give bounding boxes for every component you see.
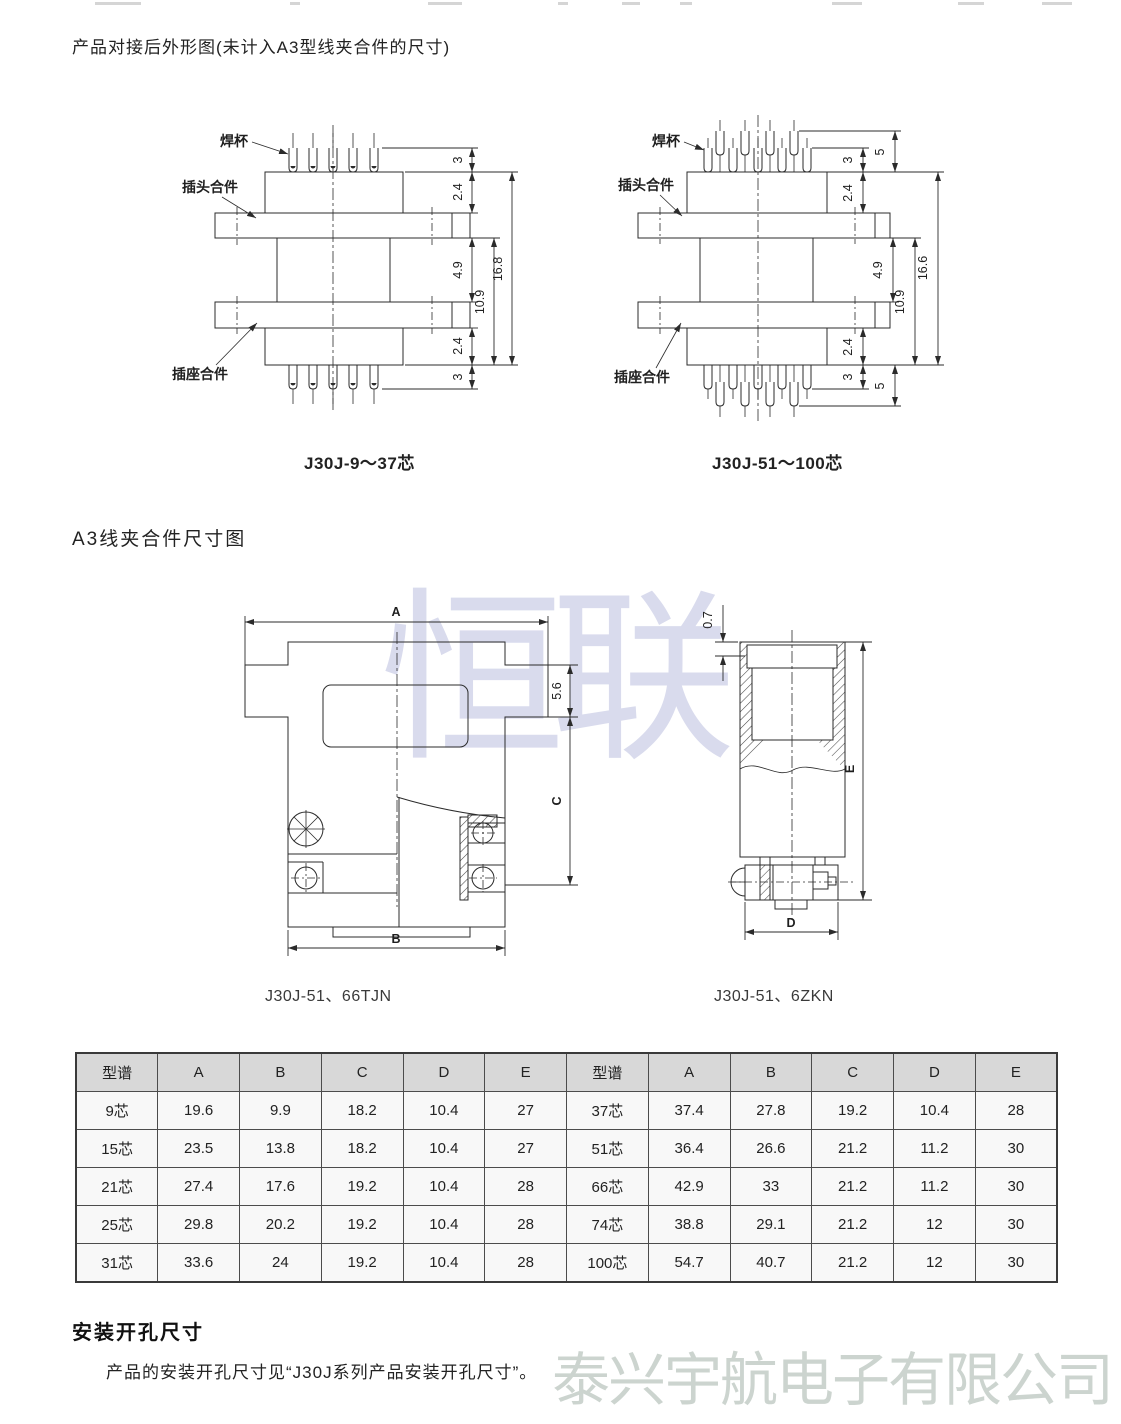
table-cell: 19.2 bbox=[321, 1168, 403, 1206]
table-cell: 10.4 bbox=[403, 1168, 485, 1206]
table-cell: 19.2 bbox=[321, 1206, 403, 1244]
table-cell: 15芯 bbox=[76, 1130, 158, 1168]
drawing-clamp-side: 0.7 E D bbox=[680, 585, 970, 985]
drawing-clamp-front: A bbox=[235, 585, 600, 980]
dim-a: A bbox=[391, 605, 400, 619]
table-cell: 27 bbox=[485, 1130, 567, 1168]
col-header: C bbox=[321, 1053, 403, 1092]
table-cell: 21.2 bbox=[812, 1168, 894, 1206]
table-cell: 9芯 bbox=[76, 1092, 158, 1130]
table-cell: 37.4 bbox=[648, 1092, 730, 1130]
col-header: B bbox=[730, 1053, 812, 1092]
table-cell: 66芯 bbox=[567, 1168, 649, 1206]
table-cell: 21芯 bbox=[76, 1168, 158, 1206]
dimension-table: 型谱 A B C D E 型谱 A B C D E 9芯19.69.918.21… bbox=[75, 1052, 1058, 1283]
label-solder-cup: 焊杯 bbox=[220, 133, 249, 149]
dim-gap: 4.9 bbox=[451, 261, 465, 278]
table-cell: 31芯 bbox=[76, 1244, 158, 1283]
caption-clamp-side: J30J-51、6ZKN bbox=[714, 982, 834, 1006]
table-cell: 13.8 bbox=[240, 1130, 322, 1168]
table-cell: 28 bbox=[485, 1206, 567, 1244]
cable-window bbox=[323, 685, 468, 747]
col-header: E bbox=[975, 1053, 1057, 1092]
table-cell: 30 bbox=[975, 1168, 1057, 1206]
col-header: 型谱 bbox=[76, 1053, 158, 1092]
col-header: 型谱 bbox=[567, 1053, 649, 1092]
dim-pin-bottom-outer: 5 bbox=[873, 382, 887, 389]
table-cell: 10.4 bbox=[403, 1206, 485, 1244]
dim-lip: 5.6 bbox=[550, 682, 564, 699]
solder-cup-pins-bottom bbox=[289, 365, 378, 404]
dim-b: B bbox=[391, 932, 400, 946]
label-socket: 插座合件 bbox=[614, 369, 670, 385]
dim-e: E bbox=[843, 765, 857, 773]
table-cell: 25芯 bbox=[76, 1206, 158, 1244]
table-cell: 30 bbox=[975, 1206, 1057, 1244]
col-header: C bbox=[812, 1053, 894, 1092]
table-cell: 51芯 bbox=[567, 1130, 649, 1168]
table-cell: 30 bbox=[975, 1244, 1057, 1283]
table-row: 15芯23.513.818.210.42751芯36.426.621.211.2… bbox=[76, 1130, 1057, 1168]
table-cell: 38.8 bbox=[648, 1206, 730, 1244]
table-cell: 29.8 bbox=[158, 1206, 240, 1244]
table-cell: 30 bbox=[975, 1130, 1057, 1168]
screw-hole bbox=[469, 864, 497, 892]
table-cell: 28 bbox=[485, 1244, 567, 1283]
table-cell: 29.1 bbox=[730, 1206, 812, 1244]
caption-clamp-front: J30J-51、66TJN bbox=[265, 982, 392, 1006]
table-cell: 20.2 bbox=[240, 1206, 322, 1244]
col-header: D bbox=[894, 1053, 976, 1092]
table-cell: 40.7 bbox=[730, 1244, 812, 1283]
caption-connector-51-100: J30J-51～100芯 bbox=[712, 449, 843, 474]
label-plug: 插头合件 bbox=[618, 177, 674, 193]
col-header: D bbox=[403, 1053, 485, 1092]
table-cell: 74芯 bbox=[567, 1206, 649, 1244]
document-page: 恒联 泰兴宇航电子有限公司 产品对接后外形图(未计入A3型线夹合件的尺寸) bbox=[0, 0, 1121, 1424]
table-cell: 28 bbox=[975, 1092, 1057, 1130]
table-cell: 37芯 bbox=[567, 1092, 649, 1130]
dim-lip: 0.7 bbox=[701, 611, 715, 628]
table-row: 31芯33.62419.210.428100芯54.740.721.21230 bbox=[76, 1244, 1057, 1283]
table-cell: 33 bbox=[730, 1168, 812, 1206]
table-cell: 19.2 bbox=[812, 1092, 894, 1130]
table-row: 9芯19.69.918.210.42737芯37.427.819.210.428 bbox=[76, 1092, 1057, 1130]
table-cell: 10.4 bbox=[403, 1130, 485, 1168]
table-cell: 42.9 bbox=[648, 1168, 730, 1206]
section3-body: 产品的安装开孔尺寸见“J30J系列产品安装开孔尺寸”。 bbox=[72, 1358, 692, 1383]
col-header: A bbox=[648, 1053, 730, 1092]
table-cell: 27 bbox=[485, 1092, 567, 1130]
table-cell: 18.2 bbox=[321, 1130, 403, 1168]
section2-title: A3线夹合件尺寸图 bbox=[72, 524, 246, 551]
solder-cup-pins-top bbox=[289, 133, 378, 172]
dim-d: D bbox=[786, 916, 795, 930]
table-row: 25芯29.820.219.210.42874芯38.829.121.21230 bbox=[76, 1206, 1057, 1244]
section3-title: 安装开孔尺寸 bbox=[72, 1316, 204, 1345]
label-solder-cup: 焊杯 bbox=[652, 133, 681, 149]
table-cell: 23.5 bbox=[158, 1130, 240, 1168]
table-cell: 19.6 bbox=[158, 1092, 240, 1130]
col-header: E bbox=[485, 1053, 567, 1092]
table-cell: 17.6 bbox=[240, 1168, 322, 1206]
section1-title: 产品对接后外形图(未计入A3型线夹合件的尺寸) bbox=[72, 33, 450, 58]
dim-total: 16.8 bbox=[491, 257, 505, 281]
drawing-connector-51-100: 3 5 2.4 4.9 10.9 16.6 2.4 3 5 焊杯 插头合件 插座… bbox=[600, 110, 1000, 430]
table-cell: 24 bbox=[240, 1244, 322, 1283]
label-socket: 插座合件 bbox=[172, 366, 228, 382]
dim-total: 16.6 bbox=[916, 256, 930, 280]
table-cell: 11.2 bbox=[894, 1130, 976, 1168]
dim-pin-top: 3 bbox=[451, 156, 465, 163]
drawing-connector-9-37: 3 2.4 4.9 10.9 16.8 2.4 3 焊杯 插头合件 插座合件 bbox=[160, 115, 530, 425]
table-cell: 12 bbox=[894, 1244, 976, 1283]
table-cell: 54.7 bbox=[648, 1244, 730, 1283]
screw-hole bbox=[291, 863, 321, 893]
table-cell: 11.2 bbox=[894, 1168, 976, 1206]
dim-body-bottom: 2.4 bbox=[451, 337, 465, 354]
dim-pin-top: 3 bbox=[841, 156, 855, 163]
dim-body-top: 2.4 bbox=[841, 184, 855, 201]
col-header: B bbox=[240, 1053, 322, 1092]
table-cell: 33.6 bbox=[158, 1244, 240, 1283]
dim-inner: 10.9 bbox=[473, 290, 487, 314]
dim-pin-top-outer: 5 bbox=[873, 148, 887, 155]
table-cell: 18.2 bbox=[321, 1092, 403, 1130]
dim-inner: 10.9 bbox=[893, 290, 907, 314]
break-line bbox=[740, 766, 845, 773]
table-cell: 27.4 bbox=[158, 1168, 240, 1206]
table-cell: 12 bbox=[894, 1206, 976, 1244]
table-cell: 100芯 bbox=[567, 1244, 649, 1283]
col-header: A bbox=[158, 1053, 240, 1092]
table-cell: 21.2 bbox=[812, 1206, 894, 1244]
solder-cup-pins-bottom bbox=[704, 365, 811, 417]
dim-body-top: 2.4 bbox=[451, 183, 465, 200]
table-cell: 21.2 bbox=[812, 1130, 894, 1168]
table-cell: 36.4 bbox=[648, 1130, 730, 1168]
table-cell: 28 bbox=[485, 1168, 567, 1206]
table-cell: 10.4 bbox=[403, 1244, 485, 1283]
caption-connector-9-37: J30J-9～37芯 bbox=[304, 449, 415, 474]
dim-c: C bbox=[550, 796, 564, 805]
table-cell: 19.2 bbox=[321, 1244, 403, 1283]
cross-circle bbox=[287, 810, 325, 848]
dim-gap: 4.9 bbox=[871, 261, 885, 278]
solder-cup-pins-top bbox=[704, 120, 811, 172]
table-cell: 10.4 bbox=[403, 1092, 485, 1130]
table-cell: 27.8 bbox=[730, 1092, 812, 1130]
dim-pin-bottom: 3 bbox=[841, 373, 855, 380]
label-plug: 插头合件 bbox=[182, 179, 238, 195]
table-cell: 9.9 bbox=[240, 1092, 322, 1130]
dim-body-bottom: 2.4 bbox=[841, 338, 855, 355]
dim-pin-bottom: 3 bbox=[451, 373, 465, 380]
table-header-row: 型谱 A B C D E 型谱 A B C D E bbox=[76, 1053, 1057, 1092]
table-cell: 10.4 bbox=[894, 1092, 976, 1130]
table-cell: 26.6 bbox=[730, 1130, 812, 1168]
table-row: 21芯27.417.619.210.42866芯42.93321.211.230 bbox=[76, 1168, 1057, 1206]
table-cell: 21.2 bbox=[812, 1244, 894, 1283]
